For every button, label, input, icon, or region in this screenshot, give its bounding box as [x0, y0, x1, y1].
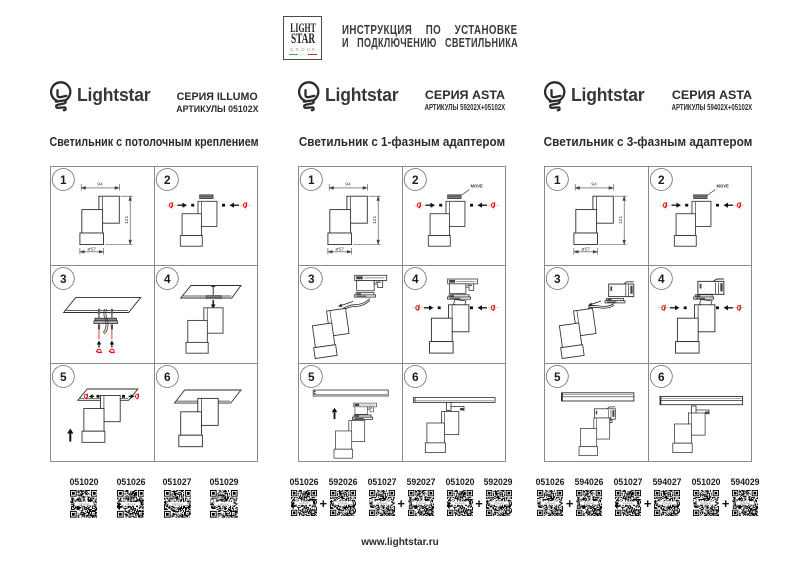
- svg-text:lightstar: lightstar: [740, 501, 750, 505]
- svg-text:6: 6: [658, 371, 665, 384]
- svg-text:1: 1: [308, 174, 315, 187]
- svg-text:94: 94: [591, 181, 597, 187]
- svg-text:MOVE: MOVE: [716, 183, 729, 188]
- svg-text:lightstar: lightstar: [299, 501, 309, 505]
- svg-text:3: 3: [554, 272, 561, 285]
- svg-text:lightstar: lightstar: [455, 501, 465, 505]
- svg-text:2: 2: [164, 174, 171, 187]
- svg-text:94: 94: [97, 181, 103, 187]
- svg-text:lightstar: lightstar: [662, 501, 672, 505]
- svg-text:lightstar: lightstar: [545, 501, 555, 505]
- svg-text:lightstar: lightstar: [623, 501, 633, 505]
- svg-text:ø57: ø57: [581, 246, 590, 252]
- svg-text:2: 2: [412, 174, 419, 187]
- svg-text:2: 2: [658, 174, 665, 187]
- svg-text:6: 6: [412, 371, 419, 384]
- svg-text:lightstar: lightstar: [701, 501, 711, 505]
- svg-text:6: 6: [164, 371, 171, 384]
- svg-text:ø57: ø57: [335, 246, 344, 252]
- svg-text:121: 121: [124, 216, 130, 225]
- svg-text:MOVE: MOVE: [470, 183, 483, 188]
- svg-text:lightstar: lightstar: [584, 501, 594, 505]
- svg-text:lightstar: lightstar: [78, 502, 89, 506]
- svg-text:1: 1: [554, 174, 561, 187]
- svg-text:lightstar: lightstar: [125, 502, 136, 506]
- svg-text:lightstar: lightstar: [493, 501, 503, 505]
- svg-text:5: 5: [308, 371, 315, 384]
- svg-text:3: 3: [308, 272, 315, 285]
- svg-text:lightstar: lightstar: [338, 501, 348, 505]
- svg-text:ø57: ø57: [87, 246, 96, 252]
- svg-text:94: 94: [345, 181, 351, 187]
- svg-text:4: 4: [412, 272, 419, 285]
- svg-text:4: 4: [658, 272, 665, 285]
- svg-text:lightstar: lightstar: [219, 502, 230, 506]
- svg-text:4: 4: [164, 272, 171, 285]
- svg-text:lightstar: lightstar: [172, 502, 183, 506]
- svg-text:5: 5: [60, 371, 67, 384]
- svg-text:121: 121: [371, 216, 377, 225]
- svg-text:5: 5: [554, 371, 561, 384]
- svg-text:lightstar: lightstar: [377, 501, 387, 505]
- svg-text:1: 1: [60, 174, 67, 187]
- svg-text:lightstar: lightstar: [416, 501, 426, 505]
- svg-text:3: 3: [60, 272, 67, 285]
- svg-text:121: 121: [618, 216, 624, 225]
